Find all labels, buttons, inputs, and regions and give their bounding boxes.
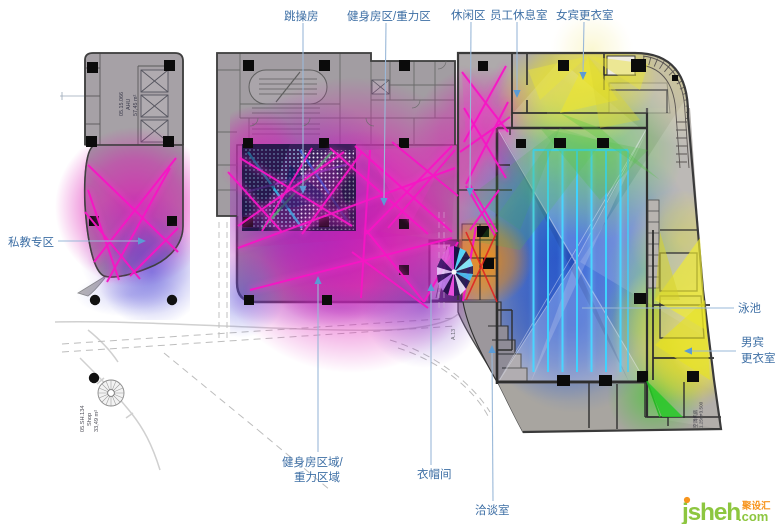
svg-text:男宾: 男宾 — [741, 335, 764, 349]
svg-text:57,45 m²: 57,45 m² — [133, 95, 139, 116]
svg-text:衣帽间: 衣帽间 — [417, 467, 452, 481]
svg-text:健身房区域/: 健身房区域/ — [282, 455, 343, 469]
svg-text:女宾更衣室: 女宾更衣室 — [556, 8, 614, 22]
svg-text:私教专区: 私教专区 — [8, 235, 54, 249]
svg-text:洽谈室: 洽谈室 — [475, 503, 510, 517]
svg-text:05.SH.134: 05.SH.134 — [80, 406, 86, 432]
svg-text:跳操房: 跳操房 — [284, 9, 319, 23]
svg-text:+3.500: +3.500 — [699, 401, 704, 416]
svg-text:员工休息室: 员工休息室 — [490, 8, 548, 22]
svg-text:33,49 m²: 33,49 m² — [94, 410, 100, 432]
svg-text:健身房区/重力区: 健身房区/重力区 — [347, 9, 431, 23]
svg-text:1.25m: 1.25m — [699, 415, 704, 428]
svg-text:A.13: A.13 — [451, 329, 457, 340]
svg-text:05.15.066: 05.15.066 — [119, 92, 125, 116]
svg-text:重力区域: 重力区域 — [294, 470, 340, 484]
svg-text:Shop: Shop — [87, 413, 93, 426]
svg-text:聚设汇: 聚设汇 — [741, 500, 771, 512]
svg-text:AHU: AHU — [126, 99, 132, 110]
svg-text:泳池: 泳池 — [738, 301, 761, 315]
svg-text:休闲区: 休闲区 — [451, 8, 486, 22]
svg-text:jsheh: jsheh — [681, 499, 740, 524]
svg-text:更衣室: 更衣室 — [741, 351, 776, 365]
